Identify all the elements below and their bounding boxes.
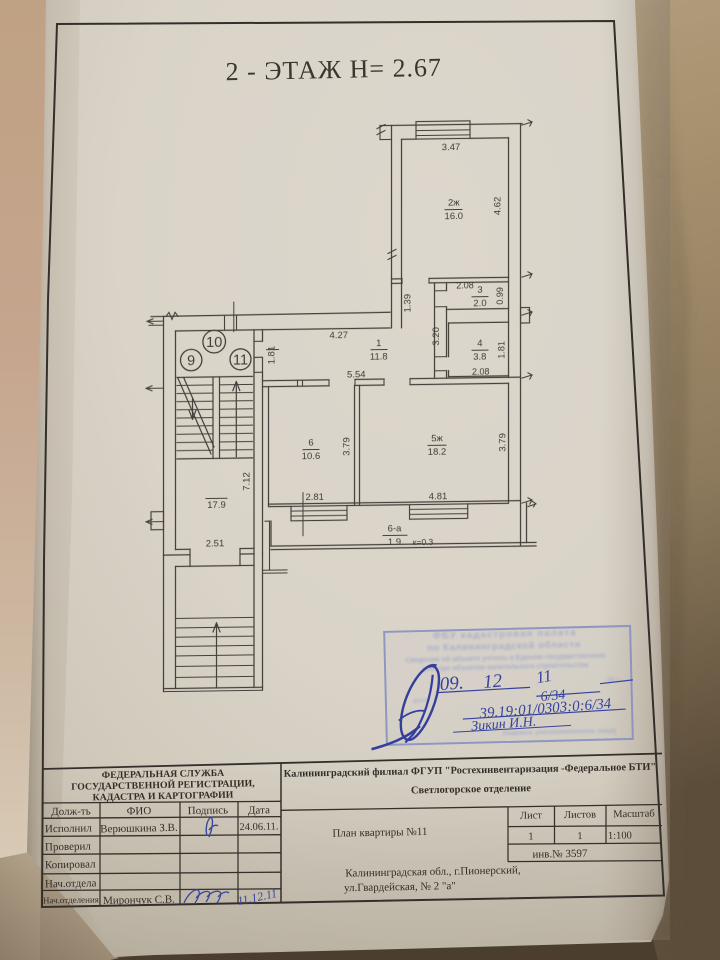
svg-text:инв.№ 3597: инв.№ 3597 (532, 848, 588, 861)
svg-text:7.12: 7.12 (242, 472, 253, 491)
svg-text:4: 4 (477, 338, 482, 349)
svg-text:3.79: 3.79 (497, 433, 508, 452)
svg-text:1: 1 (376, 338, 381, 349)
svg-text:5ж: 5ж (431, 433, 443, 444)
svg-text:6-а: 6-а (388, 523, 402, 534)
svg-text:1.81: 1.81 (267, 346, 278, 365)
svg-text:Подпись: Подпись (188, 804, 229, 817)
svg-text:1: 1 (577, 831, 582, 842)
svg-text:4.62: 4.62 (493, 197, 504, 216)
svg-text:2.0: 2.0 (473, 298, 486, 309)
svg-text:3: 3 (477, 285, 482, 296)
svg-text:10: 10 (206, 335, 222, 351)
svg-text:4.81: 4.81 (429, 491, 447, 502)
svg-text:9: 9 (187, 353, 195, 369)
svg-text:6: 6 (308, 438, 313, 449)
svg-text:11: 11 (535, 666, 554, 687)
svg-text:к=0.3: к=0.3 (413, 537, 434, 547)
svg-text:24.06.11.: 24.06.11. (239, 821, 278, 833)
svg-text:Дата: Дата (248, 804, 270, 816)
svg-text:Исполнил: Исполнил (45, 822, 93, 835)
svg-text:Нач.отделения: Нач.отделения (43, 894, 99, 905)
svg-text:11.8: 11.8 (370, 351, 388, 362)
svg-text:2.08: 2.08 (456, 280, 474, 290)
svg-text:Лист: Лист (520, 810, 543, 821)
svg-text:дата: дата (413, 697, 429, 704)
svg-text:1.81: 1.81 (497, 341, 507, 359)
svg-text:1.9: 1.9 (388, 537, 401, 548)
svg-text:Листов: Листов (564, 809, 596, 821)
svg-text:17.9: 17.9 (207, 500, 225, 511)
svg-text:Светлогорское отделение: Светлогорское отделение (411, 783, 532, 796)
svg-text:Долж-ть: Долж-ть (51, 805, 91, 818)
svg-text:1:100: 1:100 (608, 830, 632, 841)
svg-text:2.08: 2.08 (472, 367, 490, 377)
svg-text:Нач.отдела: Нач.отдела (45, 877, 97, 890)
svg-text:3.79: 3.79 (342, 437, 353, 456)
svg-text:3.8: 3.8 (473, 352, 486, 363)
svg-text:2.51: 2.51 (206, 538, 224, 549)
svg-text:18.2: 18.2 (428, 447, 446, 458)
svg-text:План квартиры №11: План квартиры №11 (332, 826, 427, 840)
svg-text:1: 1 (528, 831, 533, 842)
svg-text:10.6: 10.6 (302, 451, 320, 462)
svg-text:1.39: 1.39 (403, 294, 414, 313)
svg-text:0.99: 0.99 (495, 287, 505, 305)
svg-text:Проверил: Проверил (45, 841, 92, 854)
svg-text:2 - ЭТАЖ Н= 2.67: 2 - ЭТАЖ Н= 2.67 (225, 53, 442, 87)
svg-text:Мирончук С.В.: Мирончук С.В. (103, 894, 175, 907)
svg-text:16.0: 16.0 (445, 211, 463, 222)
svg-text:ФИО: ФИО (127, 805, 152, 817)
svg-text:Верюшкина З.В.: Верюшкина З.В. (100, 822, 178, 835)
svg-text:Копировал: Копировал (45, 858, 96, 871)
svg-text:2.81: 2.81 (305, 492, 323, 503)
svg-text:4.27: 4.27 (330, 330, 348, 341)
svg-text:3.20: 3.20 (431, 327, 442, 346)
svg-text:Масштаб: Масштаб (613, 809, 655, 821)
svg-text:11: 11 (233, 352, 248, 368)
svg-text:ул.Гвардейская, № 2 "а": ул.Гвардейская, № 2 "а" (344, 880, 456, 894)
svg-text:2ж: 2ж (448, 197, 460, 208)
svg-text:3.47: 3.47 (442, 142, 460, 153)
